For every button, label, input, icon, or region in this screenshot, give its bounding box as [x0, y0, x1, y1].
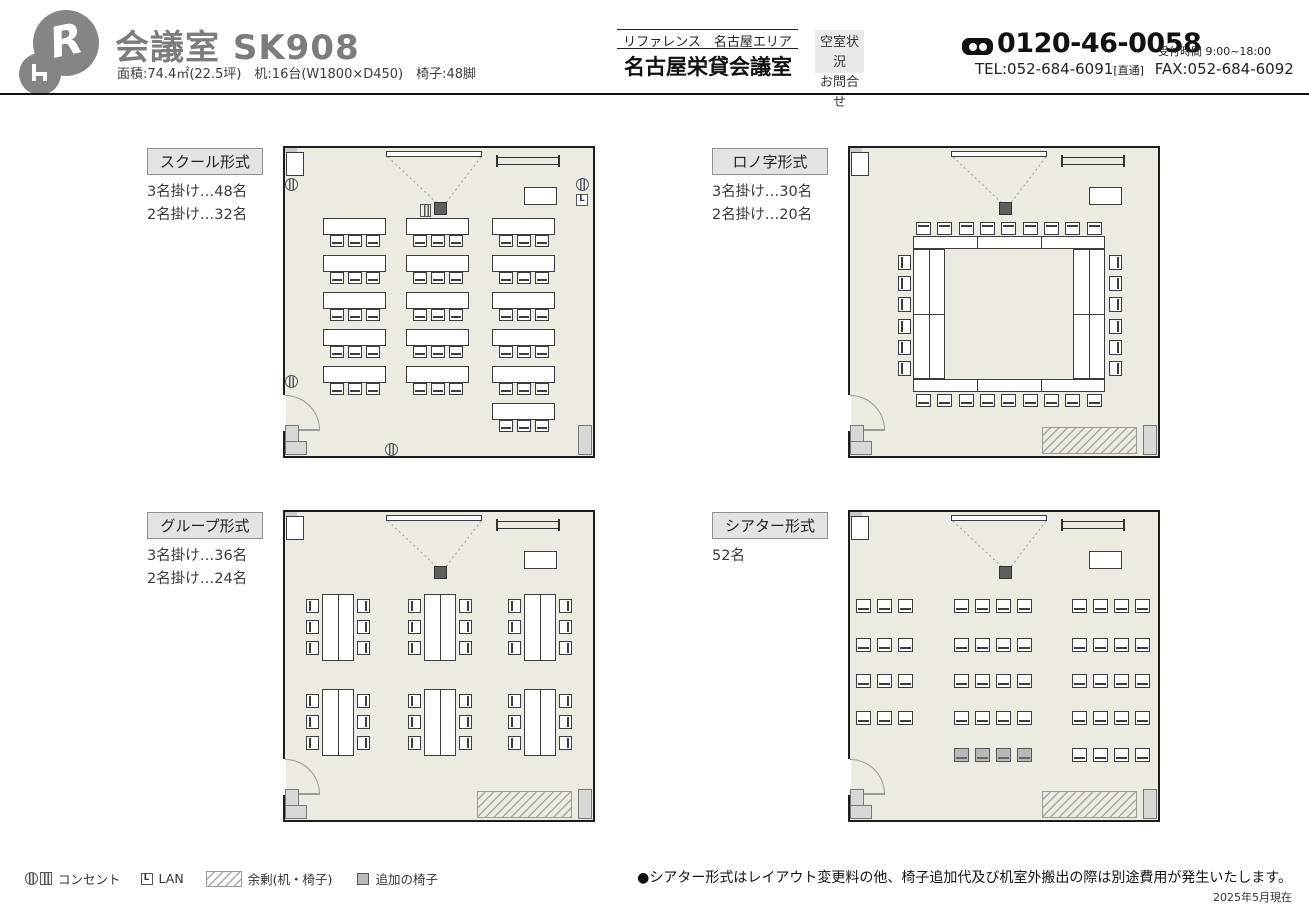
chair	[330, 309, 344, 321]
chair	[898, 711, 913, 725]
chair	[366, 309, 380, 321]
capacity-group: 3名掛け…36名 2名掛け…24名	[147, 545, 247, 591]
chair	[306, 641, 319, 655]
extra-chair	[996, 748, 1011, 762]
table	[492, 329, 555, 346]
chair	[431, 235, 445, 247]
chair	[517, 272, 531, 284]
chair	[366, 272, 380, 284]
chair	[535, 309, 549, 321]
chair	[1135, 599, 1150, 613]
chair	[517, 383, 531, 395]
table-divider	[338, 594, 339, 661]
chair	[856, 674, 871, 688]
projector-icon	[434, 566, 447, 579]
chair	[959, 222, 974, 235]
availability-line: 空室状況	[815, 33, 864, 73]
table-divider	[1041, 379, 1042, 392]
chair	[348, 309, 362, 321]
chair	[508, 641, 521, 655]
chair	[559, 620, 572, 634]
legend: コンセント L LAN 余剰(机・椅子) 追加の椅子	[25, 869, 438, 888]
table-divider	[440, 594, 441, 661]
chair	[898, 599, 913, 613]
chair	[1017, 638, 1032, 652]
chair	[499, 235, 513, 247]
table-divider	[338, 689, 339, 756]
chair	[1017, 599, 1032, 613]
chair	[413, 235, 427, 247]
chair	[1135, 711, 1150, 725]
chair	[898, 319, 911, 334]
projector-icon	[434, 202, 447, 215]
room-specs: 面積:74.4㎡(22.5坪) 机:16台(W1800×D450) 椅子:48脚	[117, 63, 476, 82]
surplus-area	[1042, 427, 1137, 454]
chair	[330, 235, 344, 247]
brand-rule-bottom	[617, 48, 798, 49]
header-divider	[0, 93, 1309, 95]
chair	[330, 383, 344, 395]
legend-lan-label: LAN	[159, 871, 184, 886]
chair	[996, 638, 1011, 652]
chair	[937, 394, 952, 407]
capacity-line: 52名	[712, 545, 745, 568]
reception-hours: 受付時間 9:00~18:00	[1158, 43, 1271, 59]
chair	[954, 638, 969, 652]
chair	[413, 346, 427, 358]
chair	[856, 599, 871, 613]
chair	[431, 309, 445, 321]
table-divider	[977, 379, 978, 392]
theater-footnote: ●シアター形式はレイアウト変更料の他、椅子追加代及び机室外搬出の際は別途費用が発…	[637, 867, 1292, 887]
table	[406, 366, 469, 383]
table-divider	[540, 594, 541, 661]
chair	[1087, 394, 1102, 407]
chair	[330, 346, 344, 358]
chair	[408, 736, 421, 750]
chair	[1065, 222, 1080, 235]
tel-fax-row: TEL:052-684-6091[直通] FAX:052-684-6092	[975, 60, 1294, 78]
chair	[898, 255, 911, 270]
floorplan-theater	[848, 510, 1160, 822]
layout-label-school: スクール形式	[147, 148, 263, 175]
surplus-swatch	[206, 871, 242, 887]
projector-icon	[999, 202, 1012, 215]
brand-rule-top	[617, 29, 798, 30]
outlet-icon	[420, 204, 431, 217]
chair	[1017, 674, 1032, 688]
chair	[898, 361, 911, 376]
floorplan-group	[283, 510, 595, 822]
lan-icon: L	[576, 194, 588, 206]
chair	[508, 694, 521, 708]
chair	[499, 272, 513, 284]
extra-chair-swatch	[357, 873, 369, 885]
layout-label-theater: シアター形式	[712, 512, 828, 539]
chair	[1109, 276, 1122, 291]
pillar	[1143, 425, 1157, 455]
chair	[357, 694, 370, 708]
chair	[1109, 361, 1122, 376]
chair	[856, 711, 871, 725]
chair	[975, 711, 990, 725]
chair	[459, 641, 472, 655]
floorplan-school: L	[283, 146, 595, 458]
chair	[508, 715, 521, 729]
pillar	[285, 805, 307, 819]
chair	[357, 736, 370, 750]
chair	[1135, 674, 1150, 688]
chair	[306, 694, 319, 708]
chair	[517, 420, 531, 432]
legend-surplus-label: 余剰(机・椅子)	[248, 869, 333, 888]
surplus-area	[1042, 791, 1137, 818]
capacity-line: 2名掛け…20名	[712, 204, 812, 227]
extra-chair	[975, 748, 990, 762]
outlet-square-icon	[40, 872, 52, 885]
chair	[306, 736, 319, 750]
chair	[431, 383, 445, 395]
venue-name: 名古屋栄貸会議室	[603, 51, 813, 81]
tel-note: [直通]	[1113, 64, 1144, 77]
extra-chair	[1017, 748, 1032, 762]
chair	[1072, 748, 1087, 762]
chair	[408, 599, 421, 613]
projector-icon	[999, 566, 1012, 579]
chair	[916, 222, 931, 235]
chair	[898, 297, 911, 312]
chair	[348, 235, 362, 247]
table	[323, 218, 386, 235]
chair	[348, 272, 362, 284]
chair	[1023, 394, 1038, 407]
chair	[449, 346, 463, 358]
chair	[348, 346, 362, 358]
layout-label-rono: ロノ字形式	[712, 148, 828, 175]
chair	[898, 674, 913, 688]
pillar	[850, 441, 872, 455]
chair	[535, 420, 549, 432]
chair	[1109, 297, 1122, 312]
pillar	[850, 805, 872, 819]
chair	[1114, 638, 1129, 652]
chair	[1017, 711, 1032, 725]
freedial-icon	[962, 38, 993, 55]
surplus-area	[477, 791, 572, 818]
table-divider	[540, 689, 541, 756]
chair	[357, 620, 370, 634]
table	[323, 366, 386, 383]
outlet-icon	[385, 443, 398, 456]
lan-icon: L	[141, 873, 153, 885]
chair	[1072, 599, 1087, 613]
capacity-rono: 3名掛け…30名 2名掛け…20名	[712, 181, 812, 227]
chair	[1093, 674, 1108, 688]
table	[323, 329, 386, 346]
projection-beam	[285, 512, 592, 819]
table-divider	[1073, 314, 1105, 315]
chair	[1114, 748, 1129, 762]
availability-box: 空室状況 お問合せ	[815, 30, 864, 73]
table	[406, 292, 469, 309]
chair	[1001, 222, 1016, 235]
chair	[954, 599, 969, 613]
table	[323, 292, 386, 309]
as-of-date: 2025年5月現在	[1213, 889, 1292, 905]
chair	[996, 599, 1011, 613]
flyer-page: R 会議室 SK908 面積:74.4㎡(22.5坪) 机:16台(W1800×…	[0, 0, 1309, 919]
chair	[1093, 748, 1108, 762]
chair	[499, 383, 513, 395]
chair	[1135, 748, 1150, 762]
chair	[408, 694, 421, 708]
chair	[898, 276, 911, 291]
chair	[877, 599, 892, 613]
table	[323, 255, 386, 272]
chair	[449, 309, 463, 321]
chair	[877, 638, 892, 652]
chair	[954, 711, 969, 725]
chair	[877, 674, 892, 688]
chair	[1065, 394, 1080, 407]
chair	[898, 340, 911, 355]
chair	[1109, 340, 1122, 355]
chair	[357, 715, 370, 729]
outlet-icon	[576, 178, 589, 191]
chair	[459, 694, 472, 708]
chair	[330, 272, 344, 284]
floorplan-rono	[848, 146, 1160, 458]
table-band	[913, 236, 1105, 249]
chair	[366, 235, 380, 247]
outlet-icon	[285, 375, 298, 388]
chair	[408, 620, 421, 634]
chair	[517, 309, 531, 321]
chair	[996, 711, 1011, 725]
table	[492, 366, 555, 383]
chair	[559, 736, 572, 750]
table	[492, 292, 555, 309]
chair	[1001, 394, 1016, 407]
legend-extra-chair-label: 追加の椅子	[375, 869, 438, 888]
chair	[459, 620, 472, 634]
chair	[517, 346, 531, 358]
table-divider	[977, 236, 978, 249]
capacity-theater: 52名	[712, 545, 745, 568]
chair	[366, 346, 380, 358]
table-band	[913, 379, 1105, 392]
pillar	[1143, 789, 1157, 819]
chair	[535, 346, 549, 358]
chair	[937, 222, 952, 235]
chair	[1093, 711, 1108, 725]
chair	[975, 674, 990, 688]
chair	[535, 235, 549, 247]
chair	[508, 599, 521, 613]
chair	[535, 272, 549, 284]
chair	[357, 641, 370, 655]
chair	[413, 383, 427, 395]
chair	[1093, 638, 1108, 652]
chair	[449, 272, 463, 284]
legend-outlet-label: コンセント	[58, 869, 121, 888]
chair	[1072, 711, 1087, 725]
extra-chair	[954, 748, 969, 762]
capacity-line: 3名掛け…48名	[147, 181, 247, 204]
chair	[508, 736, 521, 750]
chair	[459, 599, 472, 613]
outlet-round-icon	[25, 872, 38, 885]
chair	[980, 394, 995, 407]
layout-label-group: グループ形式	[147, 512, 263, 539]
table	[406, 218, 469, 235]
chair	[559, 694, 572, 708]
chair	[1109, 319, 1122, 334]
chair	[559, 599, 572, 613]
capacity-line: 3名掛け…36名	[147, 545, 247, 568]
table-divider	[1041, 236, 1042, 249]
chair	[306, 715, 319, 729]
chair	[499, 346, 513, 358]
chair	[306, 620, 319, 634]
chair	[306, 599, 319, 613]
table	[406, 255, 469, 272]
chair	[508, 620, 521, 634]
table	[492, 218, 555, 235]
chair	[1044, 222, 1059, 235]
chair	[408, 715, 421, 729]
chair	[1093, 599, 1108, 613]
chair	[357, 599, 370, 613]
chair	[1114, 711, 1129, 725]
table	[492, 255, 555, 272]
chair	[459, 736, 472, 750]
pillar	[285, 441, 307, 455]
chair	[449, 383, 463, 395]
chair	[366, 383, 380, 395]
chair	[413, 309, 427, 321]
page-title: 会議室 SK908	[115, 20, 360, 69]
capacity-line: 3名掛け…30名	[712, 181, 812, 204]
chair	[499, 420, 513, 432]
chair	[408, 641, 421, 655]
pillar	[578, 425, 592, 455]
chair	[1072, 638, 1087, 652]
chair	[431, 346, 445, 358]
chair	[1135, 638, 1150, 652]
chair	[1109, 255, 1122, 270]
table	[492, 403, 555, 420]
chair	[1072, 674, 1087, 688]
chair	[1087, 222, 1102, 235]
chair	[877, 711, 892, 725]
logo-circle-small	[19, 53, 61, 95]
chair	[1114, 599, 1129, 613]
fax-number: FAX:052-684-6092	[1155, 60, 1294, 78]
chair	[954, 674, 969, 688]
chair	[413, 272, 427, 284]
chair	[449, 235, 463, 247]
chair	[459, 715, 472, 729]
chair	[856, 638, 871, 652]
capacity-school: 3名掛け…48名 2名掛け…32名	[147, 181, 247, 227]
chair	[431, 272, 445, 284]
pillar	[578, 789, 592, 819]
tel-number: TEL:052-684-6091	[975, 60, 1113, 78]
chair	[499, 309, 513, 321]
chair	[1023, 222, 1038, 235]
chair	[517, 235, 531, 247]
chair	[348, 383, 362, 395]
chair	[916, 394, 931, 407]
chair	[1114, 674, 1129, 688]
outlet-icon	[285, 178, 298, 191]
chair	[959, 394, 974, 407]
table	[406, 329, 469, 346]
chair	[559, 641, 572, 655]
chair	[975, 638, 990, 652]
chair	[1044, 394, 1059, 407]
chair	[559, 715, 572, 729]
chair	[996, 674, 1011, 688]
chair	[535, 383, 549, 395]
chair	[898, 638, 913, 652]
table-divider	[440, 689, 441, 756]
capacity-line: 2名掛け…24名	[147, 568, 247, 591]
chair	[980, 222, 995, 235]
capacity-line: 2名掛け…32名	[147, 204, 247, 227]
table-divider	[913, 314, 945, 315]
chair	[975, 599, 990, 613]
projection-beam	[850, 512, 1157, 819]
